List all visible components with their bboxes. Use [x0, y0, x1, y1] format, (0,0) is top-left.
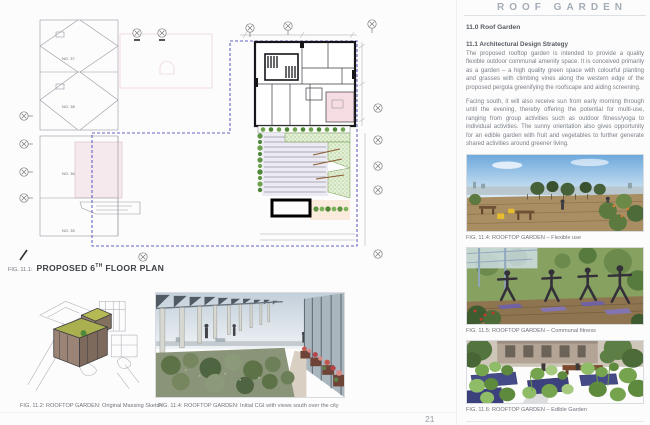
plan-caption: FIG. 11.1: PROPOSED 6TH FLOOR PLAN — [8, 263, 164, 273]
plan-title-sup: TH — [95, 263, 102, 269]
roof-terrace — [257, 133, 350, 220]
report-page: ROOF GARDEN NO. 37 NO. 38 — [0, 0, 650, 425]
strategy-paragraph-1: The proposed rooftop garden is intended … — [466, 50, 644, 92]
planting-bed — [156, 348, 295, 397]
massing-sketch-figure — [22, 292, 146, 396]
house-label-35: NO. 35 — [62, 228, 75, 233]
strategy-paragraph-2: Facing south, it will also receive sun f… — [466, 98, 644, 148]
main-building — [255, 42, 355, 126]
shrub-row — [257, 133, 262, 192]
edible-caption: FIG. 11.6: ROOFTOP GARDEN – Edible Garde… — [466, 407, 644, 413]
floor-plan-svg: NO. 37 NO. 38 NO. 36 NO. 35 — [10, 8, 460, 264]
plan-title-tail: FLOOR PLAN — [103, 263, 165, 273]
cgi-svg — [156, 293, 344, 397]
stamp-rule — [466, 421, 644, 422]
context-bay-pink — [160, 61, 174, 74]
strategy-heading: 11.1 Architectural Design Strategy — [466, 41, 644, 48]
house-label-36: NO. 36 — [62, 171, 75, 176]
planter-row — [258, 126, 350, 133]
neighbour-houses-south — [40, 136, 140, 236]
photo-communal-fitness — [466, 247, 644, 325]
header-rule — [464, 15, 646, 16]
sketch-building — [54, 308, 112, 367]
bottom-rule — [0, 412, 456, 413]
floor-plan-drawing: NO. 37 NO. 38 NO. 36 NO. 35 — [10, 8, 460, 264]
house-label-37: NO. 37 — [62, 56, 75, 61]
highlighted-room-pink — [326, 92, 354, 122]
cgi-figure — [155, 292, 345, 398]
massing-sketch-svg — [22, 292, 146, 396]
plan-title: PROPOSED 6TH FLOOR PLAN — [36, 263, 164, 273]
flexible-caption: FIG. 11.4: ROOFTOP GARDEN – Flexible use — [466, 235, 644, 241]
fitness-caption: FIG. 11.5: ROOFTOP GARDEN – Communal fit… — [466, 328, 644, 334]
right-column: 11.0 Roof Garden 11.1 Architectural Desi… — [466, 24, 644, 425]
section-heading: 11.0 Roof Garden — [466, 24, 644, 31]
cgi-caption: FIG. 11.4: ROOFTOP GARDEN: Initial CGI w… — [158, 403, 339, 409]
neighbour-houses-north — [40, 20, 118, 130]
photo-edible-garden — [466, 340, 644, 404]
pen-mark — [20, 250, 27, 260]
page-number: 21 — [425, 414, 434, 424]
plan-fig-label: FIG. 11.1: — [8, 267, 32, 273]
house-label-38: NO. 38 — [62, 104, 75, 109]
roof-opening — [272, 200, 310, 216]
photo-flexible-use — [466, 154, 644, 232]
massing-caption: FIG. 11.2: ROOFTOP GARDEN: Original Mass… — [20, 403, 162, 409]
stair-core — [265, 54, 298, 80]
plan-title-main: PROPOSED 6 — [36, 263, 95, 273]
page-title: ROOF GARDEN — [478, 2, 646, 13]
